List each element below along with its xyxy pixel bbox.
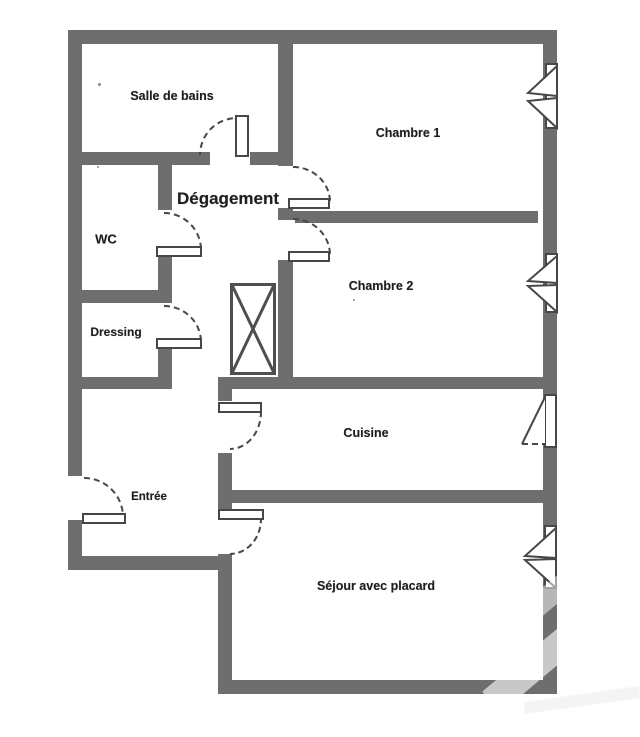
room-label-chambre-2: Chambre 2 bbox=[349, 279, 414, 293]
scan-speck bbox=[353, 299, 355, 301]
room-label-wc: WC bbox=[95, 232, 117, 247]
door-arc-icon bbox=[293, 218, 331, 255]
window-icon bbox=[518, 60, 560, 132]
room-label-entree: Entrée bbox=[131, 491, 167, 503]
wall bbox=[68, 152, 293, 165]
wall bbox=[232, 490, 543, 503]
wall bbox=[68, 556, 232, 570]
wall bbox=[158, 152, 172, 389]
window-icon bbox=[514, 392, 558, 454]
door-leaf bbox=[288, 198, 330, 209]
door-leaf bbox=[218, 509, 264, 520]
wall bbox=[293, 211, 538, 223]
floor-plan: Salle de bains Chambre 1 Dégagement WC C… bbox=[0, 0, 640, 737]
wall bbox=[68, 290, 172, 303]
door-leaf bbox=[235, 115, 249, 157]
wall bbox=[68, 377, 172, 389]
door-arc-icon bbox=[164, 212, 202, 250]
scan-speck bbox=[97, 166, 99, 168]
door-arc-icon bbox=[293, 166, 331, 202]
door-leaf bbox=[82, 513, 126, 524]
shaft-cross-icon bbox=[230, 283, 276, 375]
wall bbox=[68, 30, 557, 44]
door-leaf bbox=[218, 402, 262, 413]
room-label-degagement: Dégagement bbox=[177, 189, 279, 209]
door-arc-icon bbox=[84, 477, 124, 517]
room-label-salle-de-bains: Salle de bains bbox=[130, 89, 213, 103]
door-arc-icon bbox=[230, 412, 262, 450]
door-leaf bbox=[156, 338, 202, 349]
room-label-cuisine: Cuisine bbox=[343, 426, 388, 440]
wall bbox=[278, 30, 293, 388]
door-arc-icon bbox=[164, 305, 202, 342]
door-arc-icon bbox=[230, 519, 262, 555]
wall bbox=[222, 377, 543, 389]
window-icon bbox=[518, 250, 560, 316]
room-label-dressing: Dressing bbox=[90, 325, 141, 339]
door-leaf bbox=[288, 251, 330, 262]
door-arc-icon bbox=[199, 117, 237, 155]
window-icon bbox=[516, 522, 558, 592]
room-label-chambre-1: Chambre 1 bbox=[376, 126, 441, 140]
wall bbox=[218, 680, 557, 694]
scan-speck bbox=[98, 83, 101, 86]
room-label-sejour: Séjour avec placard bbox=[317, 579, 435, 593]
door-leaf bbox=[156, 246, 202, 257]
floor-plan-drawing: Salle de bains Chambre 1 Dégagement WC C… bbox=[0, 0, 640, 737]
